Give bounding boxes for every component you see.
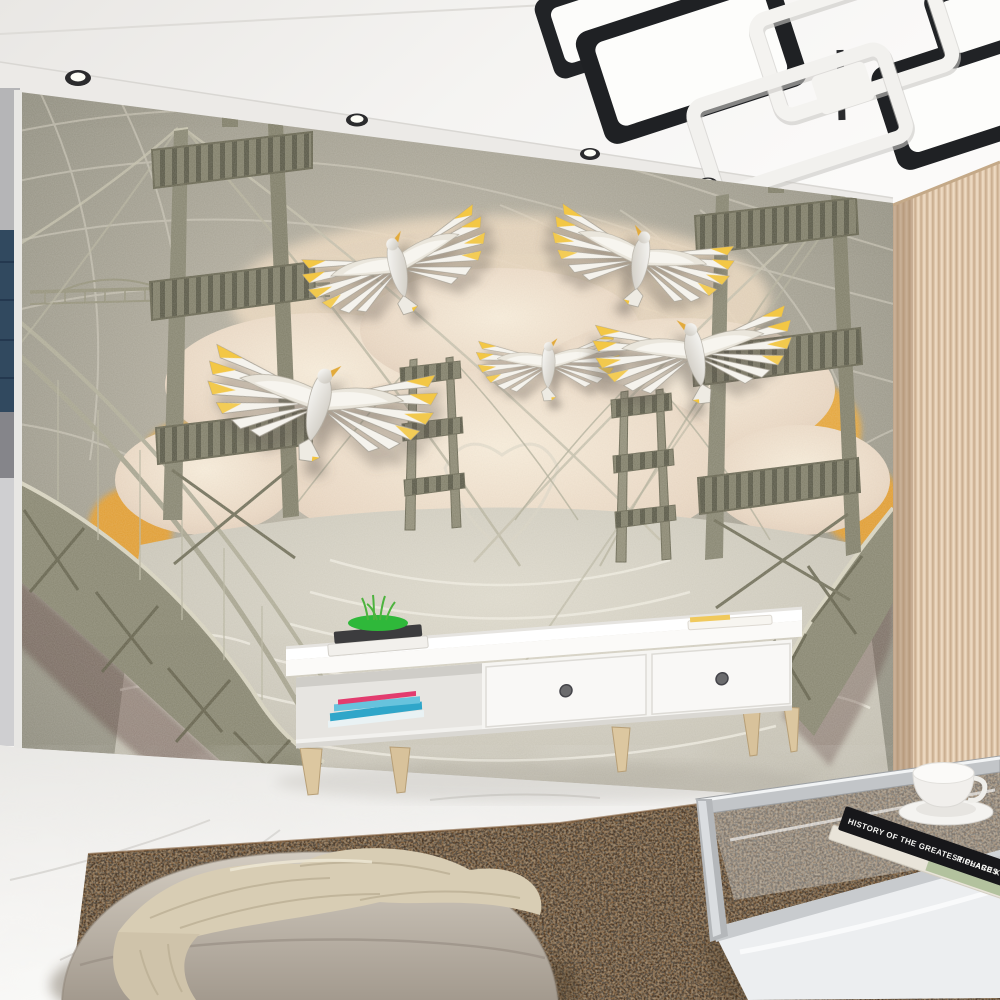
downlight-icon [346, 114, 368, 127]
downlight-icon [580, 148, 600, 160]
drawer-knob-icon [560, 684, 572, 697]
room-illustration: HISTORY OF THE GREATEST PLACES RICHARD K… [0, 0, 1000, 1000]
living-room-photo: HISTORY OF THE GREATEST PLACES RICHARD K… [0, 0, 1000, 1000]
drawer-knob-icon [716, 672, 728, 685]
coffee-table: HISTORY OF THE GREATEST PLACES RICHARD K… [696, 756, 1000, 1000]
leaf-dish [348, 615, 408, 631]
downlight-icon [65, 70, 91, 86]
wall-corner-trim [14, 90, 22, 750]
curtain [893, 162, 1000, 803]
roman-shade [0, 230, 16, 412]
adjacent-room-glimpse [0, 88, 22, 750]
curtain-edge-shadow [893, 197, 913, 803]
